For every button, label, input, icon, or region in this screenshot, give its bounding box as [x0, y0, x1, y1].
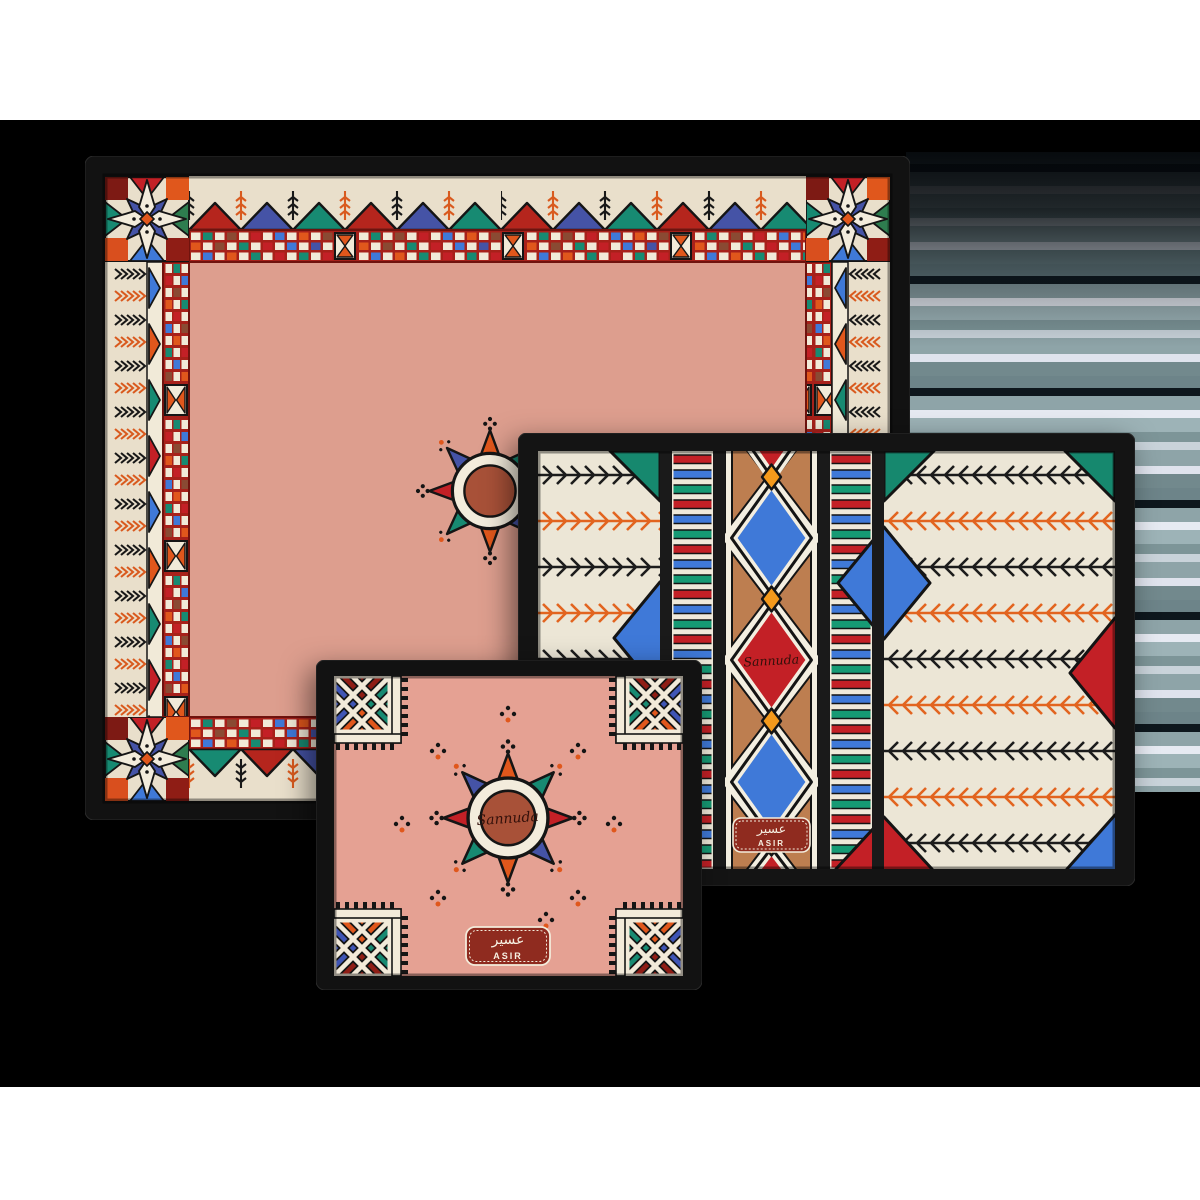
- large-top-checker-band: [189, 230, 806, 262]
- small-corner-x-top-left: [332, 674, 409, 751]
- tray-small-surface: Sannuda عسير ASIR: [332, 674, 686, 979]
- medium-asir-plaque: عسير ASIR: [733, 818, 810, 852]
- medium-plaque-arabic: عسير: [756, 821, 786, 837]
- medium-plaque-latin: ASIR: [758, 839, 785, 848]
- large-corner-star-bottom-left: [105, 717, 189, 801]
- large-corner-star-top-left: [105, 177, 189, 261]
- small-plaque-arabic: عسير: [491, 932, 525, 948]
- small-asir-plaque: عسير ASIR: [466, 927, 550, 965]
- small-corner-x-bottom-right: [609, 902, 686, 979]
- product-photo-scene: Sannuda عسير ASIR: [0, 0, 1200, 1200]
- medium-signature-script: Sannuda: [743, 652, 799, 670]
- large-top-triangle-band: [189, 186, 806, 230]
- tray-small-art: Sannuda عسير ASIR: [316, 660, 702, 990]
- large-left-zigzag-column: [147, 262, 163, 717]
- large-left-fern-column: [113, 262, 147, 717]
- small-plaque-latin: ASIR: [493, 951, 523, 961]
- large-corner-star-top-right: [806, 177, 890, 261]
- small-corner-x-top-right: [609, 674, 686, 751]
- small-corner-x-bottom-left: [332, 902, 409, 979]
- tray-small: Sannuda عسير ASIR: [316, 660, 702, 990]
- medium-stripe-column-right: [830, 451, 872, 869]
- large-left-checker-column: [163, 262, 189, 717]
